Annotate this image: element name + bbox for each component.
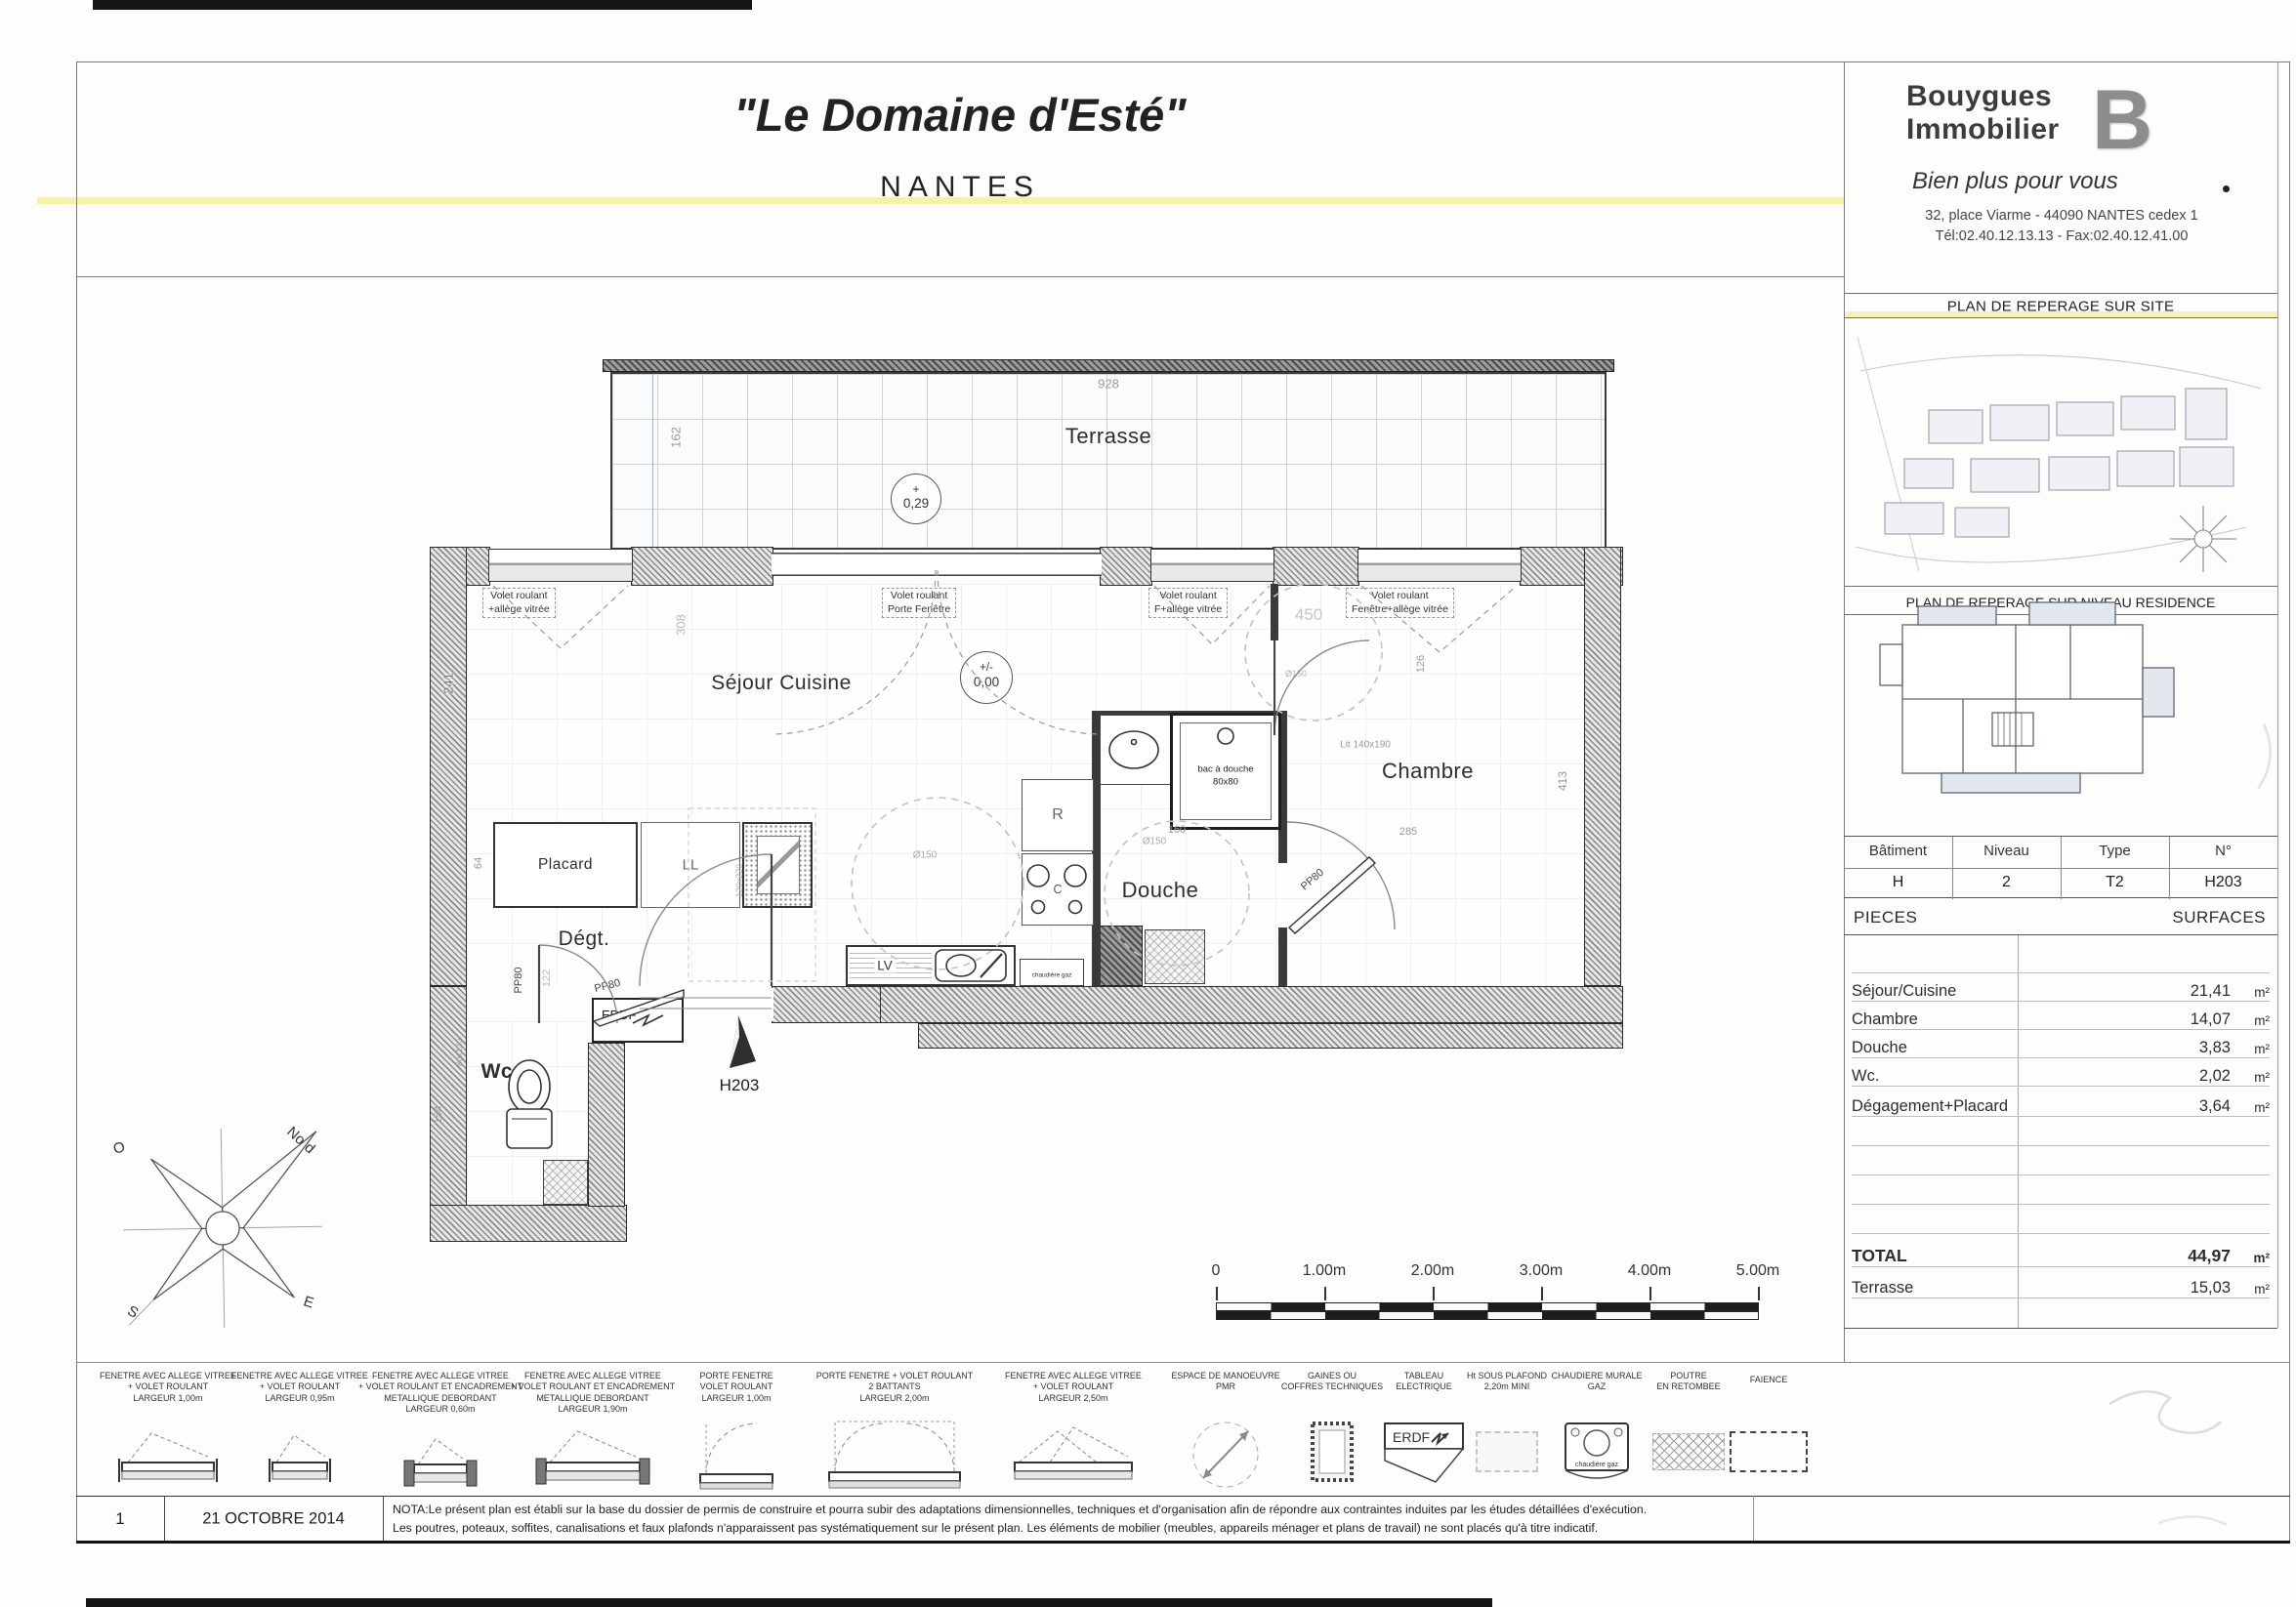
legend-line: LARGEUR 2,00m [812,1393,978,1404]
surfaces-total-unit: m² [2231,1251,2270,1266]
callout-line1: Volet roulant [1352,590,1448,603]
unit-table: Bâtiment Niveau Type N° H 2 T2 H203 [1844,836,2277,898]
scale-tick [1324,1287,1326,1300]
level-value: 0,00 [961,675,1012,689]
surfaces-empty-row [1852,935,2270,973]
sheet-bottom-rule [76,1541,2290,1544]
legend-symbol-poutre [1652,1433,1725,1470]
shower-tray-label-1: bac à douche [1197,764,1253,775]
legend-line: PORTE FENETRE [668,1371,805,1381]
partition [1271,584,1278,640]
plan-date: 21 OCTOBRE 2014 [202,1510,345,1529]
surfaces-terrasse-value: 15,03 [2158,1279,2231,1298]
legend-symbol-window [114,1423,222,1486]
duct-box [742,822,813,908]
terrasse-top-edge [603,359,1614,372]
unit-header-type: Type [2061,843,2169,859]
surfaces-total-label: TOTAL [1852,1246,2158,1266]
room-label-wc: Wc. [481,1060,520,1084]
window-callout: Volet roulant Fenêtre+allège vitrée [1346,588,1454,618]
window-symbol [488,549,633,582]
room-label-terrasse: Terrasse [1065,424,1151,449]
callout-line2: F+allège vitrée [1154,603,1222,617]
surfaces-empty-row [1852,1116,2270,1146]
column-divider [1844,62,1845,1362]
level-value: 0,29 [892,496,940,511]
footer-divider [383,1496,384,1541]
legend-line: LARGEUR 1,90m [510,1404,676,1415]
wall-segment [430,547,467,986]
surface-value: 21,41 [2158,982,2231,1001]
site-plan-header: PLAN DE REPERAGE SUR SITE [1844,293,2277,318]
surfaces-terrasse-unit: m² [2231,1282,2270,1298]
legend-line: CHAUDIERE MURALE [1542,1371,1651,1381]
legend-caption: FENETRE AVEC ALLEGE VITREE + VOLET ROULA… [510,1371,676,1415]
wall-segment [1273,547,1359,586]
surfaces-empty-row [1852,1145,2270,1175]
legend-symbol-gaines [1303,1418,1361,1486]
legend-caption: ESPACE DE MANOEUVRE PMR [1162,1371,1289,1393]
scale-bar-bottom [1216,1311,1759,1320]
level-sign: +/- [961,661,1012,675]
surface-unit: m² [2231,1013,2270,1029]
surface-unit: m² [2231,985,2270,1001]
scale-tick-label: 3.00m [1520,1262,1563,1280]
legend-caption: CHAUDIERE MURALE GAZ [1542,1371,1651,1393]
surface-value: 3,64 [2158,1097,2231,1116]
surface-unit: m² [2231,1100,2270,1116]
callout-line2: +allège vitrée [488,603,550,617]
surfaces-terrasse-label: Terrasse [1852,1279,2158,1298]
surfaces-bottom-line [1844,1328,2277,1329]
legend-symbol-faience [1730,1431,1808,1472]
room-label-chambre: Chambre [1382,759,1474,784]
brand-name-line2: Immobilier [1906,113,2060,146]
legend-symbol-window-wide [1007,1418,1140,1486]
washbasin-box [1100,715,1172,785]
unit-header-numero: N° [2169,843,2277,859]
legend-caption: FENETRE AVEC ALLEGE VITREE + VOLET ROULA… [357,1371,523,1415]
surfaces-empty-row [1852,1174,2270,1205]
legend-caption: FENETRE AVEC ALLEGE VITREE + VOLET ROULA… [227,1371,373,1404]
scale-bar-top [1216,1302,1759,1311]
terrasse-inner-line [652,374,653,548]
surfaces-total-value: 44,97 [2158,1246,2231,1266]
dim-label-diameter: Ø150 [1143,837,1166,847]
boiler-label: chaudière gaz [1032,972,1072,979]
wall-segment [772,986,881,1023]
door-label-pp80: PP80 [513,968,524,994]
unit-value-niveau: 2 [1952,874,2061,891]
nota-line1: NOTA:Le présent plan est établi sur la b… [393,1501,1745,1519]
dim-label: 928 [1098,377,1119,391]
legend-top-rule [76,1362,2290,1363]
legend-line: GAZ [1542,1381,1651,1392]
wc-shelf [543,1160,588,1205]
scale-tick [1216,1287,1218,1300]
callout-line1: Volet roulant [888,590,950,603]
legend-line: LARGEUR 0,60m [357,1404,523,1415]
legend-line: + VOLET ROULANT [95,1381,241,1392]
legend-line: FENETRE AVEC ALLEGE VITREE [357,1371,523,1381]
legend-symbol-french-door [692,1412,780,1492]
scale-tick-label: 4.00m [1628,1262,1671,1280]
legend-symbol-plafond [1476,1431,1538,1472]
legend-caption: PORTE FENETRE VOLET ROULANT LARGEUR 1,00… [668,1371,805,1404]
window-symbol [1150,549,1274,582]
scale-tick [1758,1287,1760,1300]
wall-segment [631,547,773,586]
erdf-plan-label: ERDF [602,1008,636,1022]
dim-label: 122 [541,969,553,987]
bed-label: Lit 140x190 [1340,740,1391,751]
scale-tick [1541,1287,1543,1300]
dim-label: 160 [1168,824,1186,836]
legend-symbol-window-metal [402,1427,479,1490]
scale-tick-label: 0 [1212,1262,1221,1280]
right-column-edge [2277,62,2278,1328]
dim-label-diameter: Ø150 [913,850,937,861]
level-sign: + [892,482,940,496]
window-callout: Volet roulant F+allège vitrée [1148,588,1228,618]
beam-hatch [1145,929,1205,984]
legend-symbol-window-metal [534,1423,651,1488]
scale-tick [1433,1287,1435,1300]
brand-address: 32, place Viarme - 44090 NANTES cedex 1 [1846,208,2277,224]
legend-line: FENETRE AVEC ALLEGE VITREE [510,1371,676,1381]
unit-value-numero: H203 [2169,874,2277,891]
fridge-label: R [1052,806,1064,824]
unit-value-type: T2 [2061,874,2169,891]
legend-caption: FAIENCE [1720,1375,1817,1385]
dim-label: 450 [1295,605,1322,625]
legend-symbol-french-door-2 [821,1412,968,1492]
site-plan-title: PLAN DE REPERAGE SUR SITE [1947,299,2175,315]
hob-label: C [1051,883,1064,896]
scan-artifact-top [93,0,752,10]
brand-logo: B [2092,72,2152,169]
scanned-floor-plan-sheet: "Le Domaine d'Esté" NANTES Bouygues Immo… [0,0,2296,1607]
residence-unit-label: H203 [2039,633,2081,653]
surface-value: 3,83 [2158,1039,2231,1057]
legend-line: LARGEUR 0,95m [227,1393,373,1404]
surfaces-row: Dégagement+Placard3,64m² [1852,1086,2270,1117]
scale-tick-label: 5.00m [1736,1262,1779,1280]
surfaces-header-row: PIECES SURFACES [1844,898,2277,935]
legend-symbol-tableau: ERDF [1377,1416,1471,1490]
entry-unit-label: H203 [720,1076,760,1095]
legend-line: LARGEUR 1,00m [668,1393,805,1404]
legend-caption: FENETRE AVEC ALLEGE VITREE + VOLET ROULA… [95,1371,241,1404]
legend-line: + VOLET ROULANT ET ENCADREMENT [357,1381,523,1392]
surfaces-terrasse-row: Terrasse15,03m² [1852,1266,2270,1298]
wall-segment [1100,547,1152,586]
surfaces-row: Séjour/Cuisine21,41m² [1852,972,2270,1002]
legend-symbol-pmr [1182,1414,1270,1496]
residence-plan-title: PLAN DE REPERAGE SUR NIVEAU RESIDENCE [1906,595,2216,610]
dim-label: 80x130 [454,1039,464,1066]
unit-header-niveau: Niveau [1952,843,2061,859]
dim-label: 308 [674,614,689,636]
legend-line: + VOLET ROULANT [227,1381,373,1392]
dim-label: 64 [473,857,484,869]
surface-label: Dégagement+Placard [1852,1097,2158,1116]
wall-segment [879,986,1623,1023]
surface-value: 14,07 [2158,1010,2231,1029]
surfaces-header-pieces: PIECES [1854,908,1917,927]
callout-line2: Porte Fenêtre [888,603,950,617]
scale-tick-label: 1.00m [1303,1262,1346,1280]
legend-line: + VOLET ROULANT ET ENCADREMENT [510,1381,676,1392]
legend-line: FENETRE AVEC ALLEGE VITREE [95,1371,241,1381]
legend-line: METALLIQUE DEBORDANT [357,1393,523,1404]
wall-corner-dark [1096,926,1143,986]
brand-name-line1: Bouygues [1906,80,2052,113]
surface-unit: m² [2231,1070,2270,1086]
level-marker-terrace: + 0,29 [891,474,941,524]
room-label-douche: Douche [1122,878,1199,903]
window-symbol [1357,549,1522,582]
window-callout: Volet roulant +allège vitrée [482,588,556,618]
page-subtitle: NANTES [276,171,1644,204]
nota-line2: Les poutres, poteaux, soffites, canalisa… [393,1519,1745,1538]
brand-tagline-dot [2223,185,2230,192]
callout-line1: Volet roulant [1154,590,1222,603]
duct-inner [757,836,800,894]
unit-value-batiment: H [1844,874,1952,891]
dim-label-diameter: Ø150 [1285,669,1307,679]
surfaces-row: Wc.2,02m² [1852,1057,2270,1087]
page-title: "Le Domaine d'Esté" [276,88,1644,142]
surfaces-header-surfaces: SURFACES [2172,908,2266,927]
terrasse-floor [610,372,1607,550]
surfaces-total-row: TOTAL44,97m² [1852,1233,2270,1267]
residence-plan-header: PLAN DE REPERAGE SUR NIVEAU RESIDENCE [1844,586,2277,615]
legend-line: PORTE FENETRE + VOLET ROULANT [812,1371,978,1381]
legend-caption: PORTE FENETRE + VOLET ROULANT 2 BATTANTS… [812,1371,978,1404]
callout-line1: Volet roulant [488,590,550,603]
dim-label: 126 [1415,655,1427,673]
legend-line: METALLIQUE DEBORDANT [510,1393,676,1404]
room-label-degt: Dégt. [559,927,610,951]
legend-caption: FENETRE AVEC ALLEGE VITREE + VOLET ROULA… [990,1371,1156,1404]
header-rule [76,276,1844,277]
legend-line: PMR [1162,1381,1289,1392]
partition [1278,927,1287,986]
surface-label: Douche [1852,1039,2158,1057]
dim-label: 162 [669,427,684,448]
footer-divider [1753,1496,1754,1541]
callout-line2: Fenêtre+allège vitrée [1352,603,1448,617]
dim-label: 413 [1556,771,1569,791]
footer-divider [164,1496,165,1541]
surface-label: Séjour/Cuisine [1852,982,2158,1001]
legend-line: LARGEUR 2,50m [990,1393,1156,1404]
sink-unit-box [846,945,1016,986]
surfaces-row: Douche3,83m² [1852,1029,2270,1058]
shower-tray-label-2: 80x80 [1213,777,1238,788]
wall-segment [430,1205,627,1242]
legend-line: VOLET ROULANT [668,1381,805,1392]
dim-label: 285 [1399,826,1417,838]
surfaces-empty-row [1852,1204,2270,1234]
legend-line: FENETRE AVEC ALLEGE VITREE [990,1371,1156,1381]
washer-label: LL [683,857,699,874]
revision-number: 1 [115,1509,124,1529]
room-label-placard: Placard [538,856,593,874]
legend-chaudiere-text: chaudière gaz [1575,1462,1618,1468]
legend-symbol-chaudiere: chaudière gaz [1552,1418,1642,1488]
level-marker-floor: +/- 0,00 [960,651,1013,704]
unit-header-batiment: Bâtiment [1844,843,1952,859]
room-label-sejour: Séjour Cuisine [711,672,852,695]
dim-label: 120x220 [734,864,744,898]
wall-segment [1584,547,1621,986]
french-door-symbol [772,553,1102,576]
scan-artifact-bottom [86,1598,1492,1607]
surface-unit: m² [2231,1042,2270,1057]
wall-segment [588,1043,625,1207]
nota-text: NOTA:Le présent plan est établi sur la b… [393,1501,1745,1538]
brand-tagline: Bien plus pour vous [1912,168,2118,195]
legend-line: LARGEUR 1,00m [95,1393,241,1404]
surface-label: Wc. [1852,1067,2158,1086]
legend-symbol-window [265,1423,335,1486]
legend-line: FAIENCE [1720,1375,1817,1385]
legend-line: 2 BATTANTS [812,1381,978,1392]
legend-line: FENETRE AVEC ALLEGE VITREE [227,1371,373,1381]
surface-label: Chambre [1852,1010,2158,1029]
surfaces-row: Chambre14,07m² [1852,1001,2270,1030]
legend-erdf-text: ERDF [1393,1429,1430,1445]
legend-line: + VOLET ROULANT [990,1381,1156,1392]
brand-contact: Tél:02.40.12.13.13 - Fax:02.40.12.41.00 [1846,228,2277,244]
dishwasher-label: LV [874,959,896,973]
wall-segment [918,1023,1623,1049]
surface-value: 2,02 [2158,1067,2231,1086]
dim-label: 241 [441,673,456,694]
scale-tick-label: 2.00m [1411,1262,1454,1280]
legend-line: ESPACE DE MANOEUVRE [1162,1371,1289,1381]
dim-label: 154 [433,1106,444,1124]
window-callout: Volet roulant Porte Fenêtre [882,588,956,618]
scale-tick [1649,1287,1651,1300]
